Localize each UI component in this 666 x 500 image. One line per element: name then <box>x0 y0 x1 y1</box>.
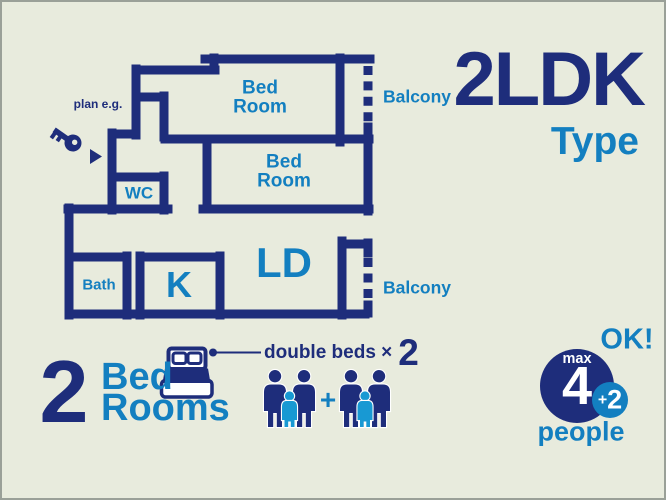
ok-label: OK! <box>600 326 653 355</box>
extra-capacity: + 2 <box>598 387 622 414</box>
extra-value: 2 <box>607 387 622 414</box>
double-beds-label: double beds × <box>264 342 392 364</box>
bedroom-count-label: Bed Rooms <box>101 362 230 424</box>
bedroom2-line2: Room <box>257 172 311 191</box>
label-balcony-top: Balcony <box>383 88 451 106</box>
bedroom1-line1: Bed <box>233 80 287 99</box>
bedroom2-line1: Bed <box>257 154 311 173</box>
floor-plan-flyer: plan e.g. Bed Room Bed Room WC Bath K LD… <box>0 0 666 500</box>
room-label-wc: WC <box>125 185 153 202</box>
room-label-living-dining: LD <box>256 242 312 284</box>
key-icon <box>49 123 85 155</box>
bedroom1-line2: Room <box>233 98 287 117</box>
double-beds-count: 2 <box>398 332 419 374</box>
double-beds-callout: double beds × 2 <box>264 332 419 374</box>
plus-sign: + <box>320 386 336 414</box>
label-balcony-bottom: Balcony <box>383 279 451 297</box>
child-person-icon <box>282 391 297 427</box>
child-person-icon <box>358 391 373 427</box>
entrance-arrow-icon <box>90 149 102 164</box>
max-value: 4 <box>562 359 592 413</box>
plan-note: plan e.g. <box>74 98 123 110</box>
bed-label-connector <box>209 349 261 357</box>
bedroom-count: 2 <box>40 348 89 436</box>
room-label-bedroom-1: Bed Room <box>233 80 287 117</box>
page-title: 2LDK <box>454 42 644 118</box>
room-label-bedroom-2: Bed Room <box>257 154 311 191</box>
people-group-1 <box>264 370 315 427</box>
people-label: people <box>537 419 624 446</box>
room-label-kitchen: K <box>166 267 192 303</box>
page-subtitle: Type <box>551 122 639 161</box>
bedrooms-line2: Rooms <box>101 393 230 424</box>
people-group-2 <box>340 370 390 427</box>
room-label-bath: Bath <box>82 278 115 293</box>
extra-plus: + <box>598 392 607 408</box>
